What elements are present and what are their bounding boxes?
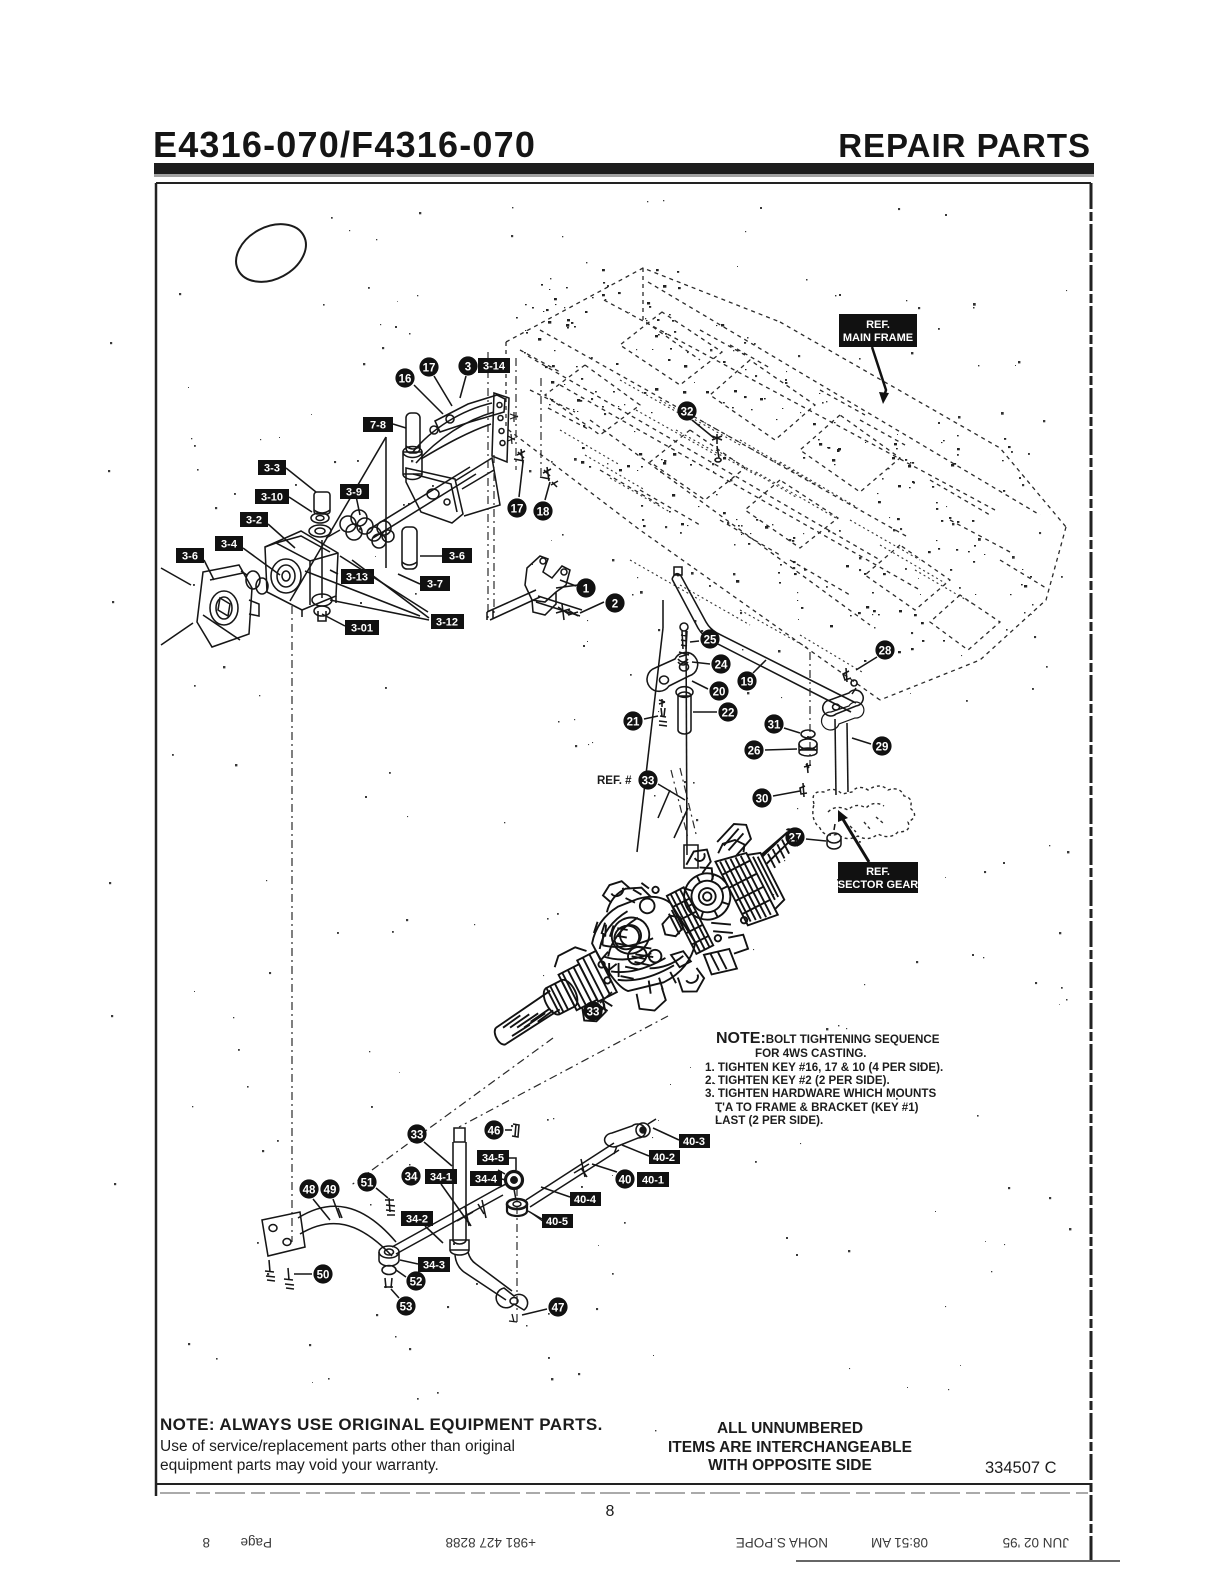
svg-text:T'A TO FRAME & BRACKET (KEY #1: T'A TO FRAME & BRACKET (KEY #1) [715,1101,919,1114]
svg-text:Use of service/replacement par: Use of service/replacement parts other t… [160,1438,515,1455]
svg-text:34-3: 34-3 [423,1260,445,1272]
svg-text:32: 32 [681,407,694,419]
svg-text:1: 1 [583,584,590,596]
svg-text:21: 21 [627,717,640,729]
svg-text:3-6: 3-6 [182,551,198,563]
svg-text:40: 40 [619,1175,632,1187]
svg-text:40-3: 40-3 [683,1136,705,1148]
svg-text:3-4: 3-4 [221,539,238,551]
svg-text:3: 3 [465,362,471,374]
svg-text:3-2: 3-2 [246,515,262,527]
svg-text:8: 8 [202,1535,210,1550]
svg-text:16: 16 [399,374,412,386]
svg-text:30: 30 [756,794,769,806]
svg-text:NOTE:BOLT TIGHTENING SEQUENCE: NOTE:BOLT TIGHTENING SEQUENCE [716,1030,940,1047]
svg-text:equipment parts may void your: equipment parts may void your warranty. [160,1457,439,1474]
svg-text:33: 33 [587,1007,600,1019]
svg-text:3-13: 3-13 [346,572,368,584]
svg-text:51: 51 [361,1178,374,1190]
svg-text:MAIN FRAME: MAIN FRAME [843,332,913,344]
svg-text:REF.: REF. [866,319,890,331]
svg-text:17: 17 [423,363,436,375]
svg-text:SECTOR GEAR: SECTOR GEAR [838,879,919,891]
svg-text:17: 17 [511,504,524,516]
svg-text:25: 25 [704,635,717,647]
svg-text:3-3: 3-3 [264,463,280,475]
svg-text:WITH OPPOSITE SIDE: WITH OPPOSITE SIDE [708,1457,872,1474]
svg-text:2: 2 [612,599,618,611]
svg-text:33: 33 [642,776,655,788]
svg-text:1. TIGHTEN KEY #16, 17 & 10 (4: 1. TIGHTEN KEY #16, 17 & 10 (4 PER SIDE)… [705,1061,943,1074]
svg-text:34-5: 34-5 [482,1153,504,1165]
svg-text:NOHA S.POPE: NOHA S.POPE [736,1535,828,1550]
svg-text:3. TIGHTEN HARDWARE WHICH MOUN: 3. TIGHTEN HARDWARE WHICH MOUNTS [705,1087,936,1100]
svg-text:3-01: 3-01 [351,623,373,635]
svg-text:NOTE: ALWAYS USE ORIGINAL EQUI: NOTE: ALWAYS USE ORIGINAL EQUIPMENT PART… [160,1415,603,1434]
svg-text:46: 46 [488,1126,501,1138]
svg-text:40-1: 40-1 [642,1175,664,1187]
svg-text:48: 48 [303,1185,316,1197]
svg-text:E4316-070/F4316-070: E4316-070/F4316-070 [153,124,536,165]
svg-text:3-14: 3-14 [483,361,506,373]
svg-text:18: 18 [537,507,550,519]
svg-text:47: 47 [552,1303,565,1315]
svg-text:19: 19 [741,677,754,689]
svg-text:34: 34 [405,1172,418,1184]
svg-text:Page: Page [240,1535,272,1550]
svg-text:49: 49 [324,1185,337,1197]
svg-text:3-7: 3-7 [427,579,443,591]
svg-text:22: 22 [722,708,735,720]
svg-text:33: 33 [411,1130,424,1142]
svg-text:3-12: 3-12 [436,617,458,629]
svg-text:REPAIR PARTS: REPAIR PARTS [838,127,1091,164]
svg-text:REF. #: REF. # [597,775,632,787]
svg-text:LAST (2 PER SIDE).: LAST (2 PER SIDE). [715,1114,823,1127]
svg-text:31: 31 [768,720,781,732]
svg-text:7-8: 7-8 [370,420,386,432]
svg-text:29: 29 [876,742,889,754]
svg-text:3-6: 3-6 [449,551,465,563]
svg-text:ITEMS ARE INTERCHANGEABLE: ITEMS ARE INTERCHANGEABLE [668,1439,912,1456]
svg-text:3-9: 3-9 [346,487,362,499]
svg-text:FOR 4WS CASTING.: FOR 4WS CASTING. [755,1047,866,1060]
svg-text:26: 26 [748,746,761,758]
svg-text:20: 20 [713,687,726,699]
svg-text:28: 28 [879,646,892,658]
svg-text:334507 C: 334507 C [985,1459,1057,1477]
svg-text:2. TIGHTEN KEY #2 (2 PER SIDE): 2. TIGHTEN KEY #2 (2 PER SIDE). [705,1074,890,1087]
svg-text:50: 50 [317,1270,330,1282]
svg-text:34-2: 34-2 [406,1214,428,1226]
svg-text:40-4: 40-4 [574,1194,597,1206]
svg-text:34-4: 34-4 [475,1174,498,1186]
svg-text:40-5: 40-5 [546,1216,568,1228]
svg-text:52: 52 [410,1277,423,1289]
svg-text:ALL UNNUMBERED: ALL UNNUMBERED [717,1420,863,1437]
svg-text:40-2: 40-2 [653,1152,675,1164]
svg-text:34-1: 34-1 [430,1172,452,1184]
svg-text:3-10: 3-10 [261,492,283,504]
svg-text:REF.: REF. [866,866,890,878]
svg-text:+981 427 8288: +981 427 8288 [446,1535,536,1550]
svg-text:JUN 02 '95: JUN 02 '95 [1003,1535,1069,1550]
svg-text:08:51 AM: 08:51 AM [871,1535,928,1550]
svg-text:8: 8 [606,1503,615,1520]
svg-text:24: 24 [715,660,728,672]
svg-text:53: 53 [400,1302,413,1314]
